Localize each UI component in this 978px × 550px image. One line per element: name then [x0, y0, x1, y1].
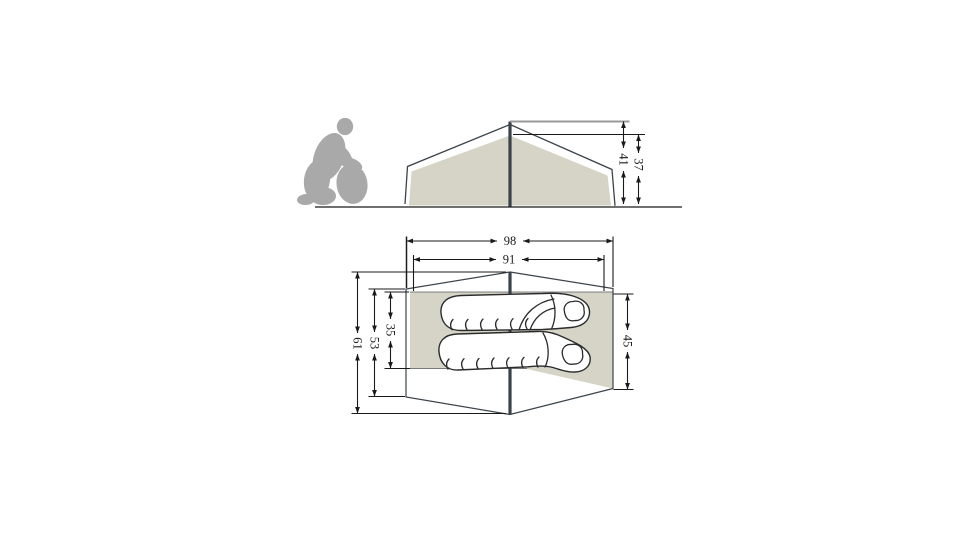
dim-sleeping-depth-right: 45	[614, 294, 635, 390]
dim-peak-height: 41	[617, 122, 631, 205]
dim-mid-depth: 53	[368, 289, 406, 397]
kneeling-person-icon	[297, 118, 371, 206]
tent-dimension-diagram: 41 37	[0, 0, 978, 550]
dim-sleeping-depth-right-label: 45	[621, 335, 635, 348]
diagram-svg: 41 37	[0, 0, 978, 550]
top-view: 98 91 61 53	[351, 234, 635, 415]
dim-sleeping-depth-left-label: 35	[384, 324, 398, 337]
sleeping-bag-top	[441, 293, 590, 330]
sleeping-bag-top-face	[564, 301, 584, 321]
dim-inner-height-label: 37	[632, 158, 646, 171]
dim-peak-height-label: 41	[617, 153, 631, 166]
dim-inner-height: 37	[632, 135, 646, 205]
sleeping-bag-bottom-face	[562, 344, 583, 364]
dim-total-depth-label: 61	[351, 337, 365, 350]
dim-outer-width-label: 98	[504, 234, 517, 248]
side-view: 41 37	[297, 118, 682, 207]
dim-inner-width-label: 91	[503, 253, 516, 267]
dim-mid-depth-label: 53	[368, 337, 382, 350]
